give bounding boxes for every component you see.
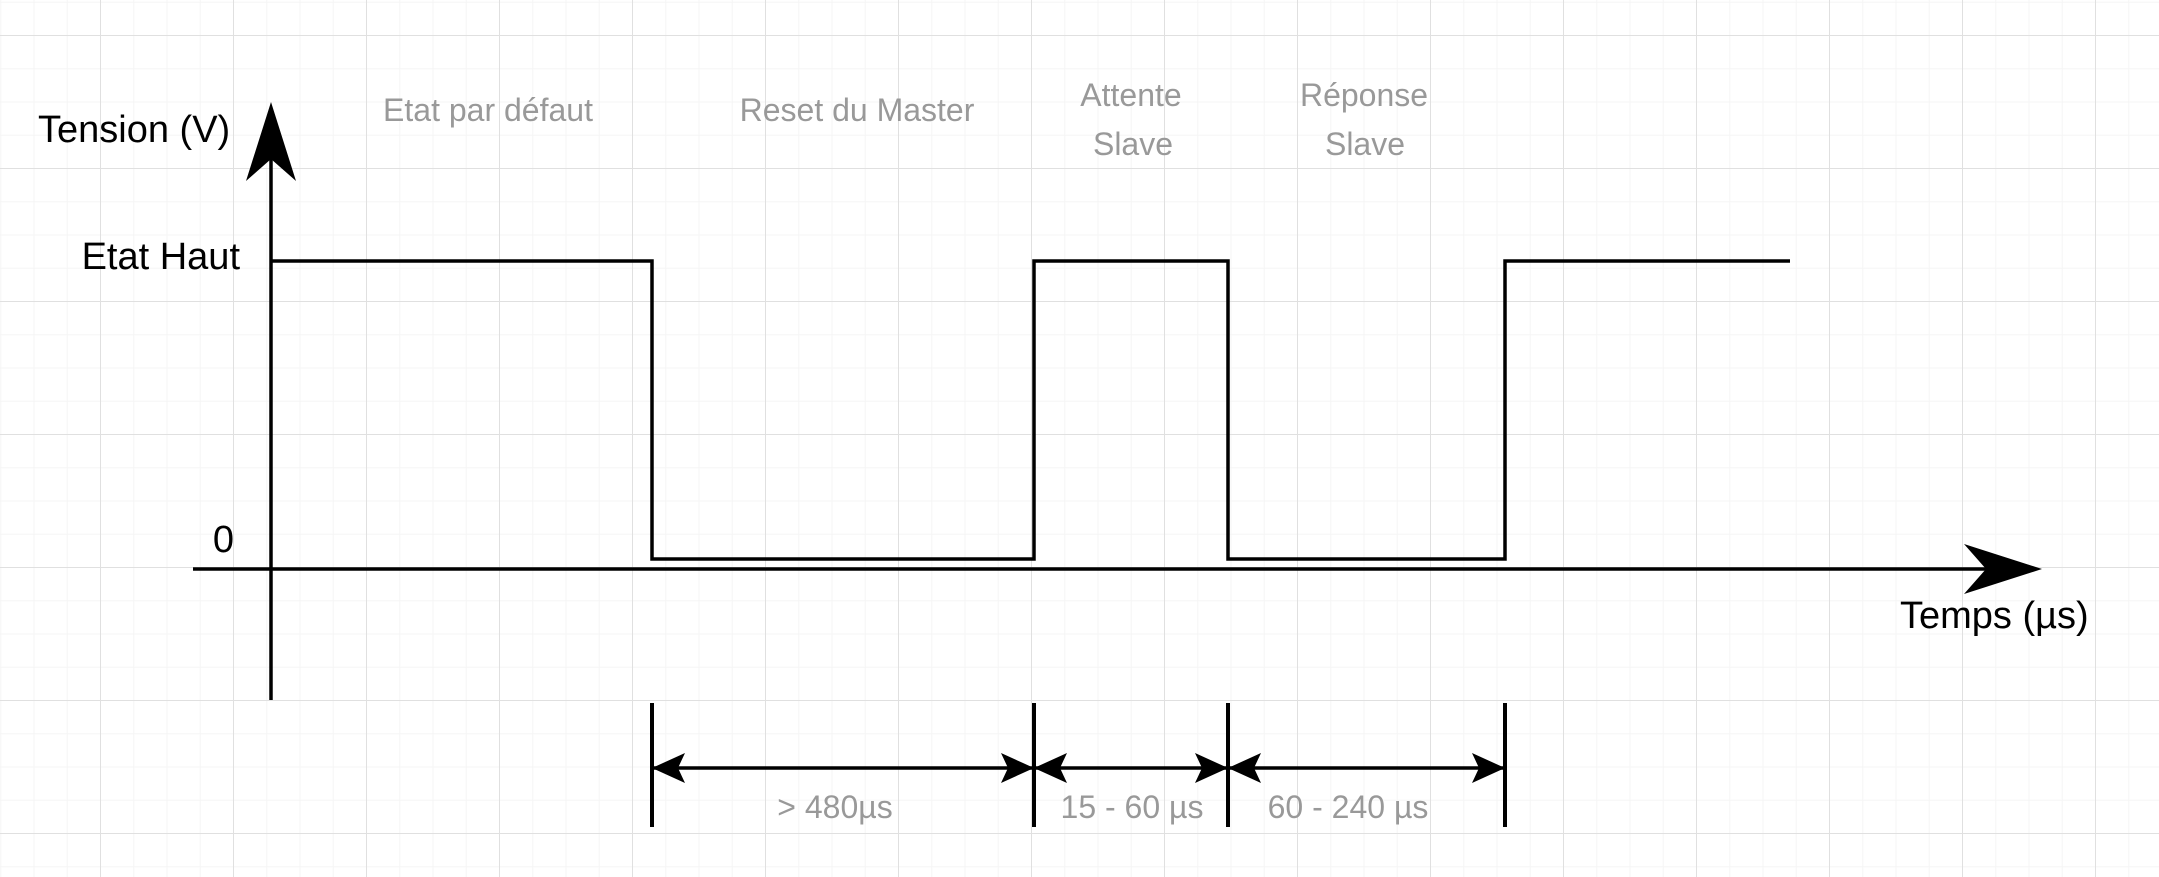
signal-waveform bbox=[272, 261, 1790, 559]
origin-label: 0 bbox=[213, 519, 234, 561]
phase-label-reponse-line1: Réponse bbox=[1300, 77, 1428, 113]
phase-label-default: Etat par défaut bbox=[383, 92, 593, 128]
phase-label-attente-line2: Slave bbox=[1093, 126, 1173, 162]
timing-diagram: Tension (V) Etat Haut 0 Temps (µs) Etat … bbox=[0, 0, 2159, 877]
phase-label-reset: Reset du Master bbox=[740, 92, 975, 128]
x-axis-label: Temps (µs) bbox=[1900, 595, 2089, 637]
high-level-label: Etat Haut bbox=[82, 236, 241, 278]
duration-label-reset: > 480µs bbox=[777, 789, 892, 825]
duration-label-reponse: 60 - 240 µs bbox=[1268, 789, 1429, 825]
y-axis-label: Tension (V) bbox=[38, 109, 230, 151]
phase-label-reponse-line2: Slave bbox=[1325, 126, 1405, 162]
phase-label-attente-line1: Attente bbox=[1080, 77, 1181, 113]
duration-label-attente: 15 - 60 µs bbox=[1061, 789, 1204, 825]
grid-canvas: Tension (V) Etat Haut 0 Temps (µs) Etat … bbox=[0, 0, 2159, 877]
